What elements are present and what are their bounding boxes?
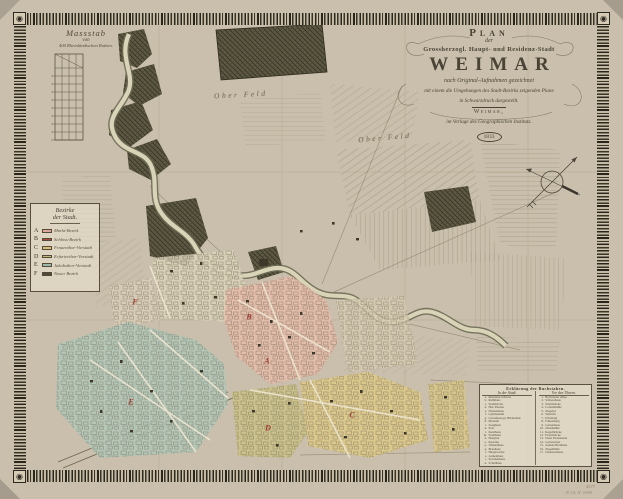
title-cartouche: Plan der Grossherzogl. Haupt- und Reside… <box>388 27 590 143</box>
index-entry: u. Schulhaus <box>482 462 532 465</box>
cartouche-der: der <box>388 38 590 44</box>
cartouche-rule <box>472 107 506 108</box>
district-letter: A <box>264 357 269 366</box>
border-band-bottom <box>14 470 609 482</box>
map-sheet: ◉ ◉ ◉ ◉ Plan der Grossherzogl. Haupt- un… <box>0 0 623 499</box>
index-box: Erklärung der Buchstaben. In der Stadt. … <box>479 384 592 467</box>
district-neutral-east <box>336 296 418 372</box>
district-teal-jakobs <box>56 322 228 458</box>
scale-ruler <box>51 54 83 140</box>
legend-item-label: Neuer Bezirk <box>54 271 78 276</box>
legend-color-swatch <box>42 229 52 233</box>
legend-color-swatch <box>42 255 52 259</box>
paper-corner-cut <box>603 479 623 499</box>
legend-color-swatch <box>42 272 52 276</box>
legend-header-2: der Stadt. <box>34 214 96 221</box>
legend-item-label: Markt-Bezirk <box>54 228 79 233</box>
legend-item: D Erfurterthor-Vorstadt <box>34 252 96 261</box>
cartouche-note-1: nach Original-Aufnahmen gezeichnet <box>388 78 590 84</box>
paper-corner-cut <box>0 479 20 499</box>
legend-color-swatch <box>42 238 52 242</box>
border-band-right <box>597 13 609 482</box>
legend-item-key: A <box>34 228 40 234</box>
legend-item-label: Frauenthor-Vorstadt <box>54 245 92 250</box>
index-entry: 17. Chausseehaus <box>539 451 589 454</box>
legend-color-swatch <box>42 246 52 250</box>
district-letter: E <box>128 398 133 407</box>
cartouche-year: 1833 <box>477 132 502 142</box>
district-letter: C <box>349 411 354 420</box>
district-yellow-frauenthor <box>300 372 428 458</box>
legend-item: A Markt-Bezirk <box>34 226 96 235</box>
pencil-annotation-1: 4577 <box>586 484 595 489</box>
district-olive-erfurter <box>232 384 308 458</box>
border-band-top <box>14 13 609 25</box>
map-title: WEIMAR <box>388 54 590 76</box>
border-band-left <box>14 13 26 482</box>
legend-item: E Jakobsthor-Vorstadt <box>34 261 96 270</box>
legend-item: C Frauenthor-Vorstadt <box>34 244 96 253</box>
legend-item-label: Jakobsthor-Vorstadt <box>54 263 91 268</box>
district-letter: D <box>265 424 271 433</box>
legend-item-key: B <box>34 236 40 242</box>
index-divider <box>535 391 536 465</box>
district-letter: B <box>246 313 251 322</box>
legend-item: F Neuer Bezirk <box>34 269 96 278</box>
legend-item-key: E <box>34 262 40 268</box>
index-col-gates: Vor den Thoren. 1. Belvederer Allee 2. S… <box>539 391 589 465</box>
legend-rule <box>50 223 80 224</box>
paper-corner-cut <box>603 0 623 20</box>
district-yellow-east-strip <box>428 380 470 452</box>
legend-item: B Schloss-Bezirk <box>34 235 96 244</box>
scale-bar: Massstab von 400 Rheinländischen Ruthen. <box>36 28 136 48</box>
district-letter: F <box>132 298 137 307</box>
cartouche-note-2: mit einem die Umgebungen des Stadt-Bezir… <box>388 88 590 94</box>
pencil-annotation-2: P. 14. N. 1690. <box>566 490 593 495</box>
index-col-city: In der Stadt. a. Residenz-Schloss b. Rat… <box>482 391 532 465</box>
legend-item-key: F <box>34 271 40 277</box>
paper-corner-cut <box>0 0 20 20</box>
district-legend: Bezirke der Stadt. A Markt-Bezirk B Schl… <box>30 203 100 292</box>
legend-item-label: Schloss-Bezirk <box>54 237 81 242</box>
cartouche-subtitle: Grossherzogl. Haupt- und Residenz-Stadt <box>388 46 590 53</box>
legend-item-label: Erfurterthor-Vorstadt <box>54 254 93 259</box>
scale-title: Massstab <box>36 28 136 38</box>
cartouche-city: Weimar, <box>388 109 590 115</box>
legend-items: A Markt-Bezirk B Schloss-Bezirk C Frauen… <box>34 226 96 278</box>
legend-header-1: Bezirke <box>34 207 96 214</box>
cartouche-note-3: in Schwarzdruck dargestellt. <box>388 98 590 104</box>
scale-unit: 400 Rheinländischen Ruthen. <box>36 43 136 48</box>
legend-item-key: D <box>34 254 40 260</box>
legend-color-swatch <box>42 263 52 267</box>
legend-item-key: C <box>34 245 40 251</box>
